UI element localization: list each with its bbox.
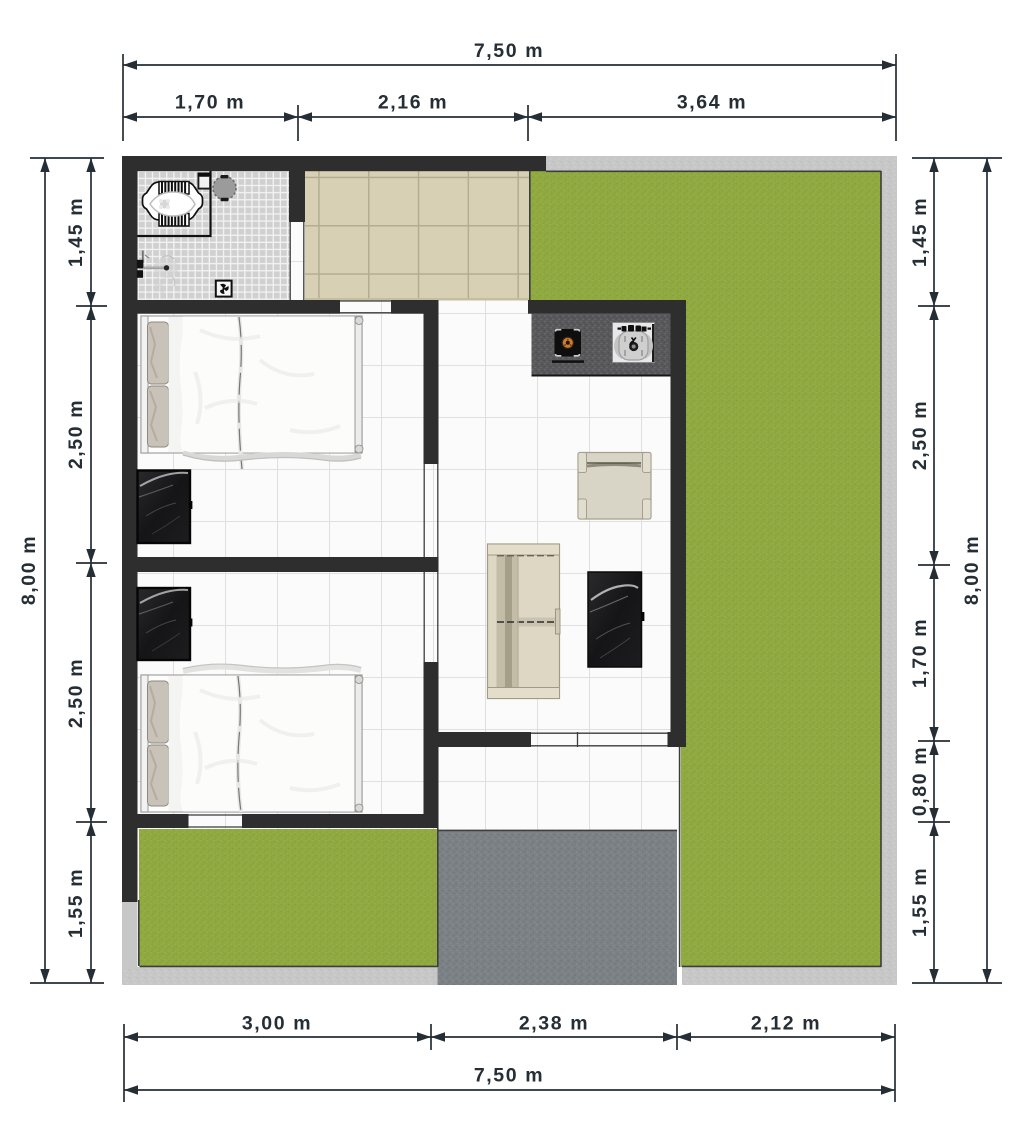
svg-text:1,70 m: 1,70 m xyxy=(175,92,245,114)
svg-text:2,38 m: 2,38 m xyxy=(519,1013,589,1035)
svg-text:1,55 m: 1,55 m xyxy=(65,868,87,938)
svg-text:1,45 m: 1,45 m xyxy=(909,197,931,267)
svg-text:7,50 m: 7,50 m xyxy=(474,1065,544,1087)
svg-text:2,50 m: 2,50 m xyxy=(65,399,87,469)
svg-text:7,50 m: 7,50 m xyxy=(474,40,544,62)
svg-text:3,00 m: 3,00 m xyxy=(242,1013,312,1035)
svg-text:8,00 m: 8,00 m xyxy=(961,535,983,605)
svg-text:2,12 m: 2,12 m xyxy=(751,1013,821,1035)
svg-text:8,00 m: 8,00 m xyxy=(18,535,40,605)
svg-text:2,50 m: 2,50 m xyxy=(909,400,931,470)
svg-text:2,16 m: 2,16 m xyxy=(378,92,448,114)
svg-text:1,70 m: 1,70 m xyxy=(909,618,931,688)
svg-text:2,50 m: 2,50 m xyxy=(65,658,87,728)
svg-text:3,64 m: 3,64 m xyxy=(677,92,747,114)
svg-text:1,45 m: 1,45 m xyxy=(65,197,87,267)
svg-text:1,55 m: 1,55 m xyxy=(909,867,931,937)
svg-text:0,80 m: 0,80 m xyxy=(909,746,931,816)
